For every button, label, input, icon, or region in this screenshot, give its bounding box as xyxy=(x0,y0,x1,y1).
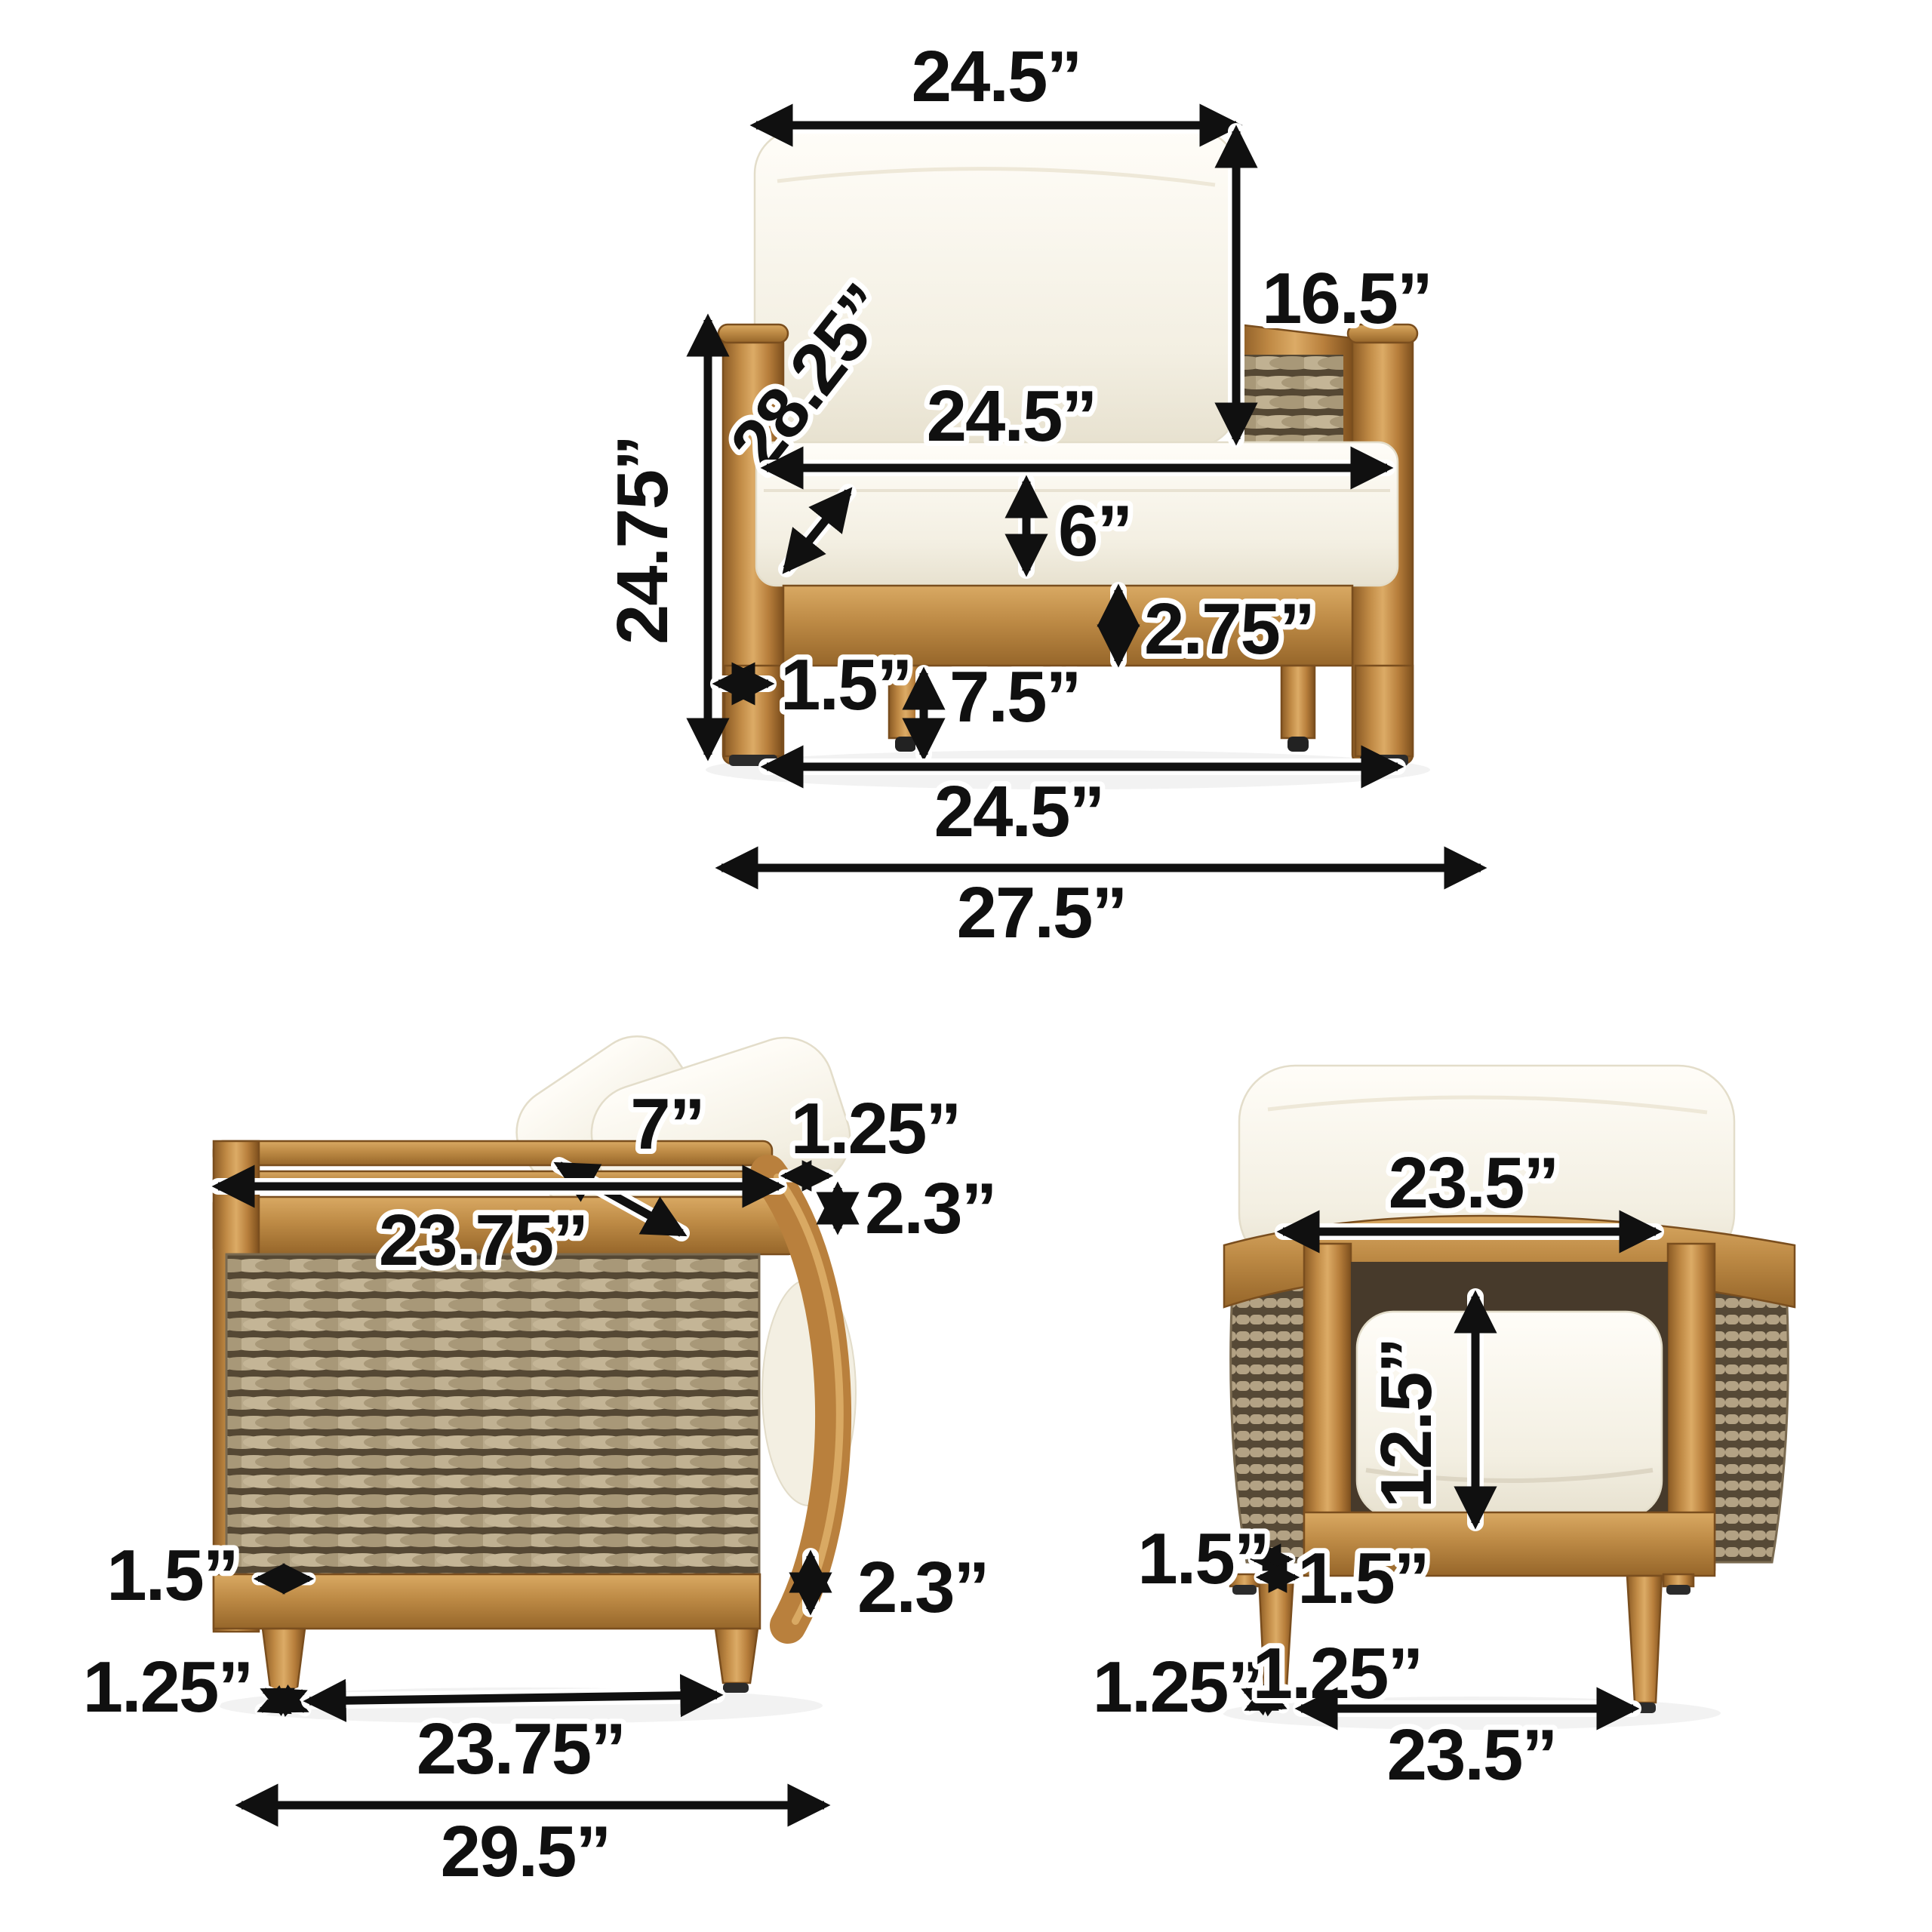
dimension-front-under-clearance: 7.5” xyxy=(924,657,1080,755)
dimension-label: 24.5” xyxy=(927,376,1097,457)
dimension-label: 1.5” xyxy=(1297,1538,1428,1619)
leg-near-right xyxy=(1627,1576,1662,1703)
dimension-side-rim-lip: 1.25” xyxy=(785,1088,960,1176)
dimension-label: 23.75” xyxy=(417,1709,625,1789)
dimension-label: 23.5” xyxy=(1389,1143,1558,1223)
dimension-label: 7” xyxy=(630,1084,703,1164)
dimension-label: 16.5” xyxy=(1262,258,1432,339)
dimension-front-overall-height: 24.75” xyxy=(602,320,708,755)
diagram-canvas: 24.5” 16.5” 28.25” 24.75” 24.5” 6” 2.75”… xyxy=(0,0,1932,1932)
dimension-label: 1.5” xyxy=(1137,1518,1268,1599)
dimension-label: 2.3” xyxy=(865,1168,995,1249)
dimension-diagram: 24.5” 16.5” 28.25” 24.75” 24.5” 6” 2.75”… xyxy=(0,0,1932,1932)
dimension-side-rim-height-bottom: 2.3” xyxy=(811,1547,988,1628)
dimension-label: 1.5” xyxy=(780,645,911,725)
leg-inner-right xyxy=(1281,666,1315,738)
dimension-label: 24.5” xyxy=(934,771,1104,852)
dimension-label: 1.25” xyxy=(83,1647,253,1727)
dimension-label: 6” xyxy=(1058,491,1131,571)
side-view-chair xyxy=(214,1019,863,1724)
dimension-label: 7.5” xyxy=(949,657,1080,737)
dimension-label: 24.75” xyxy=(602,436,683,645)
dimension-side-overall-depth: 29.5” xyxy=(241,1805,824,1892)
dimension-label: 1.25” xyxy=(1093,1647,1263,1727)
dimension-front-back-cushion-width: 24.5” xyxy=(756,36,1236,125)
caster-inner-left xyxy=(895,737,916,752)
dimension-label: 24.5” xyxy=(912,36,1081,117)
dimension-label: 23.75” xyxy=(379,1200,587,1281)
foot-far-right xyxy=(1666,1585,1690,1595)
caster-inner-right xyxy=(1287,737,1309,752)
armrest-left-cap xyxy=(718,325,788,343)
leg-far-right xyxy=(1663,1574,1694,1586)
dimension-label: 29.5” xyxy=(441,1811,611,1892)
dimension-label: 12.5” xyxy=(1366,1339,1447,1509)
foot-side-rear xyxy=(723,1683,749,1693)
leg-front-right xyxy=(1355,666,1413,756)
dimension-front-overall-width: 27.5” xyxy=(721,868,1481,953)
dimension-label: 27.5” xyxy=(957,872,1127,953)
dimension-side-rim-height-top: 2.3” xyxy=(838,1168,995,1249)
dimension-label: 2.3” xyxy=(857,1547,988,1628)
dimension-back-leg-width-rear: 1.5” xyxy=(1137,1518,1289,1599)
leg-side-rear xyxy=(715,1629,758,1683)
dimension-label: 2.75” xyxy=(1144,589,1314,669)
dimension-label: 1.25” xyxy=(791,1088,961,1169)
dimension-label: 23.5” xyxy=(1387,1715,1557,1795)
dimension-front-apron-height: 2.75” xyxy=(1118,589,1314,669)
wicker-side-panel xyxy=(226,1254,759,1574)
dimension-label: 1.5” xyxy=(106,1535,237,1616)
